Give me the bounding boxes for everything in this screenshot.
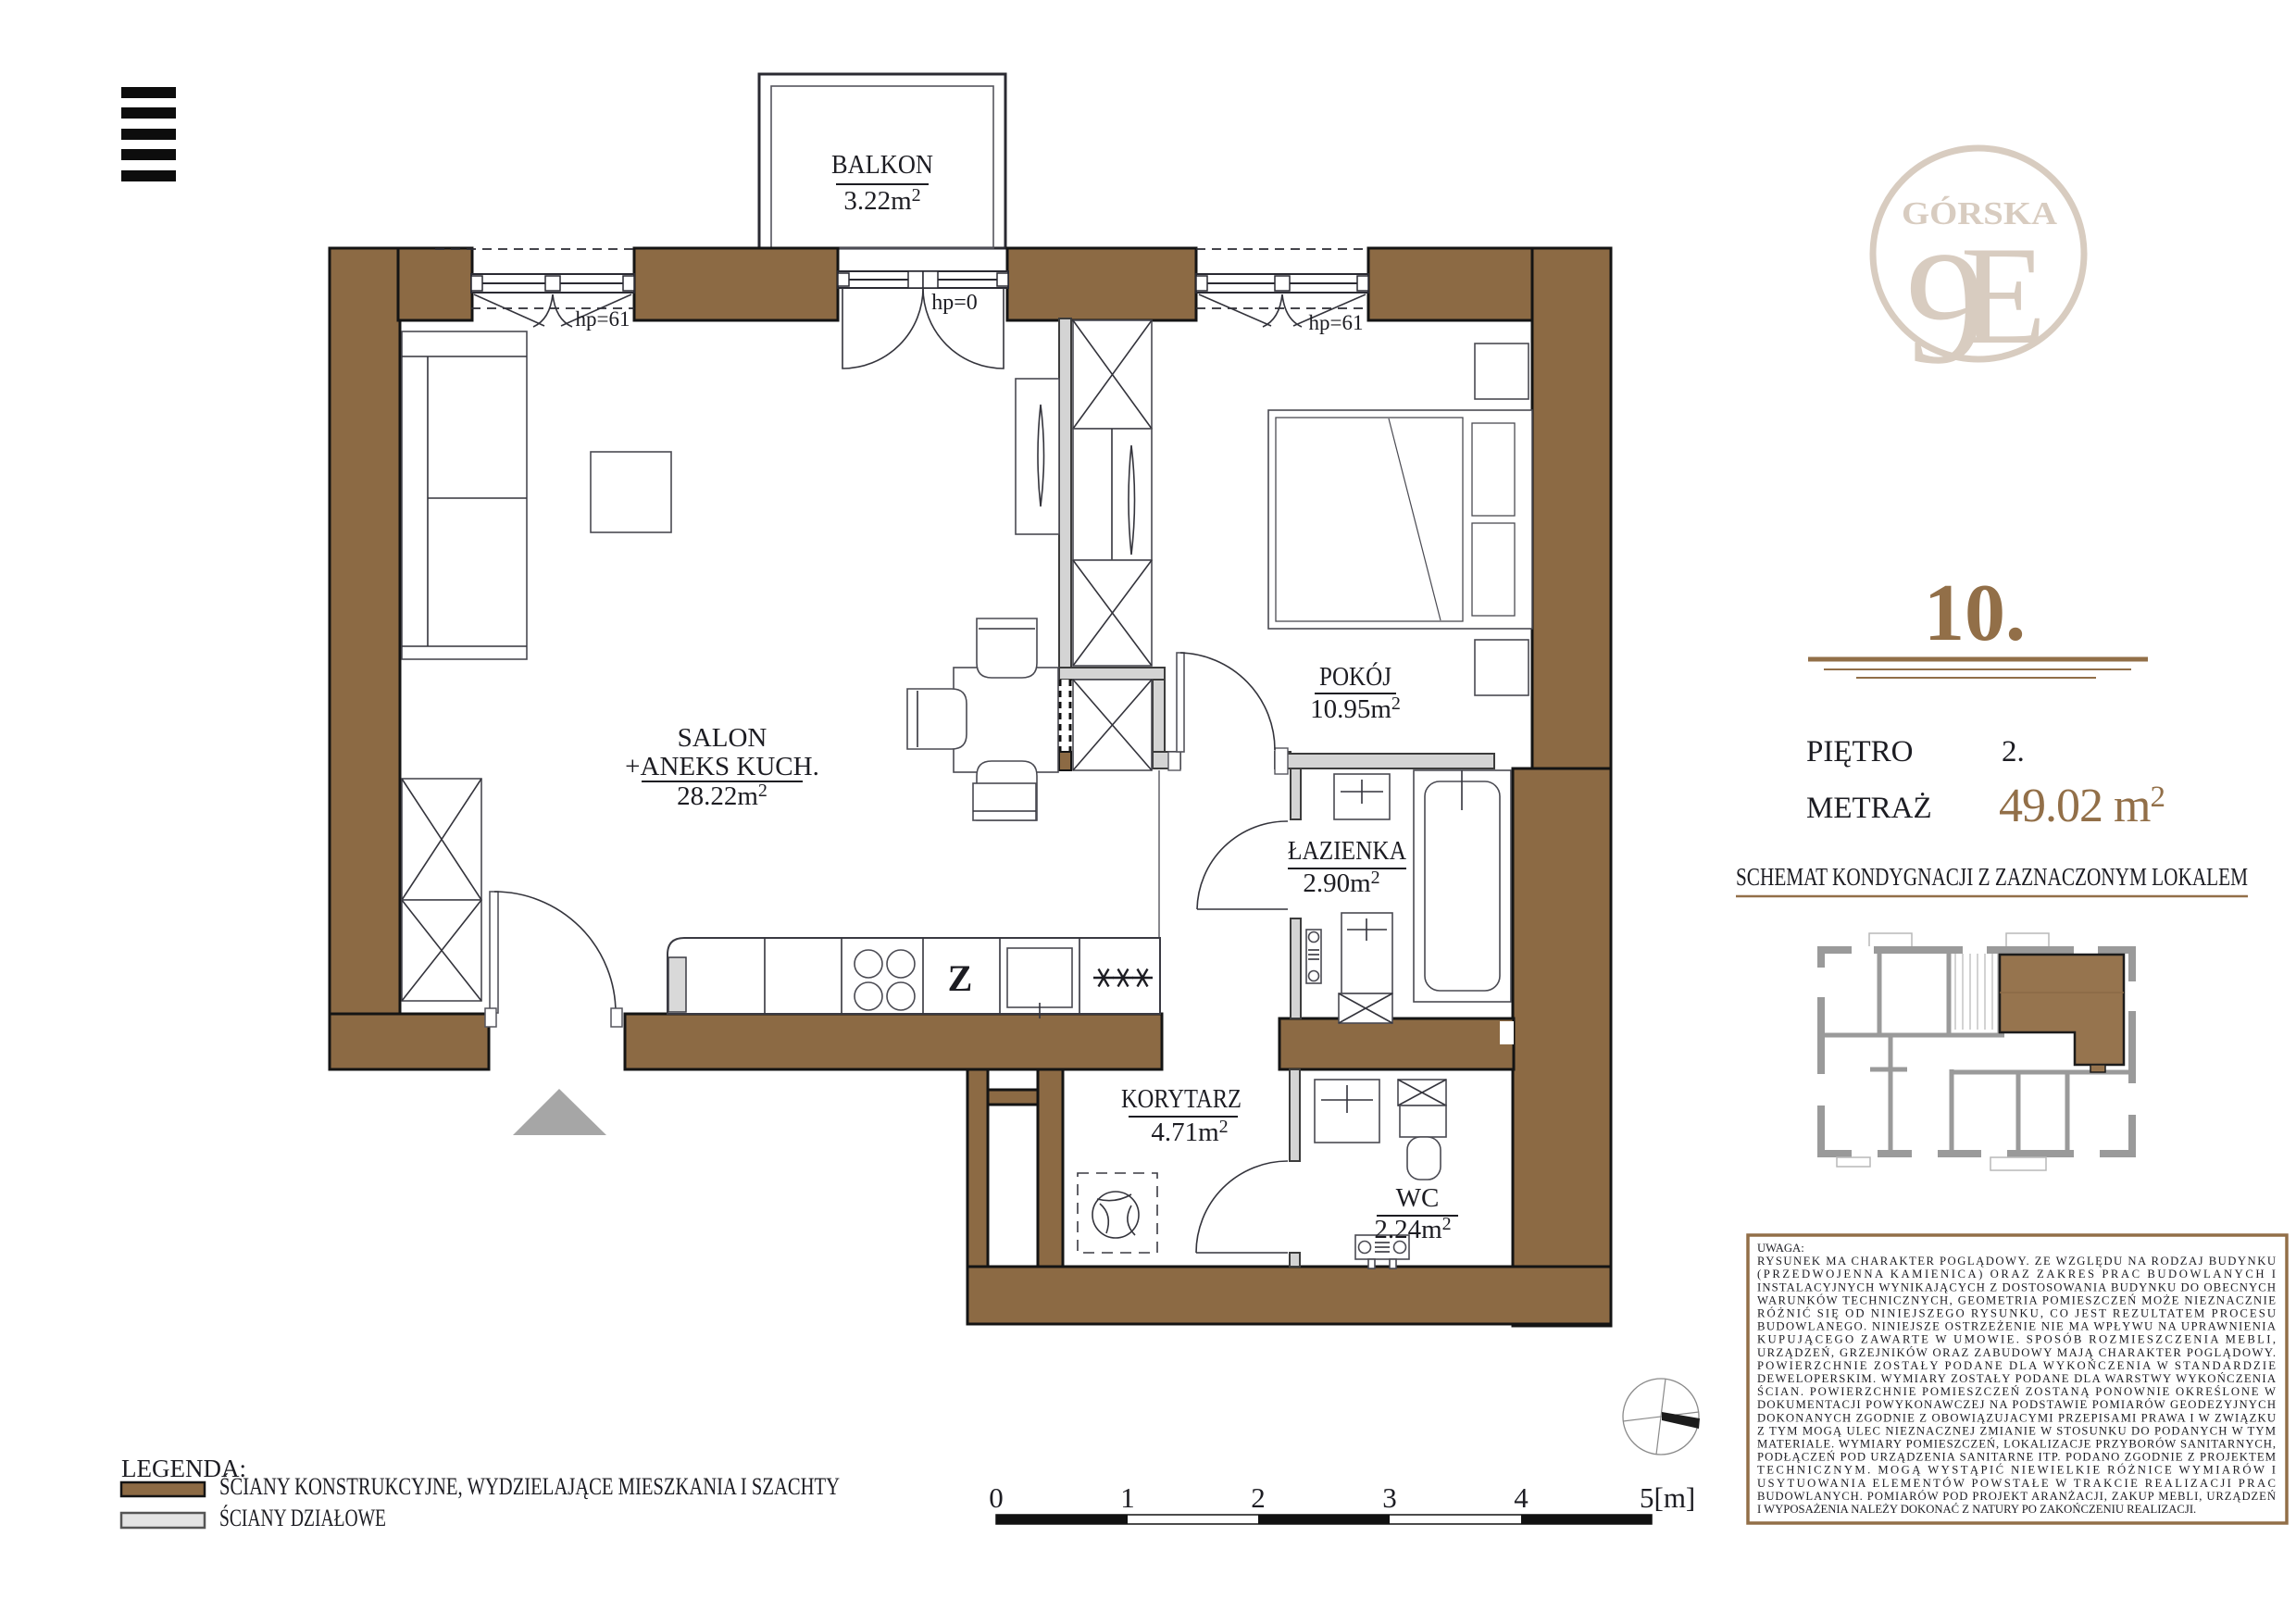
svg-text:10.: 10. xyxy=(1924,568,2026,658)
svg-text:2.90m2: 2.90m2 xyxy=(1303,868,1379,898)
svg-text:TECHNICZNYM. MOGĄ WYSTĄPIĆ NIE: TECHNICZNYM. MOGĄ WYSTĄPIĆ NIEWIELKIE RÓ… xyxy=(1757,1464,2276,1477)
svg-text:Z: Z xyxy=(948,957,973,999)
svg-text:MATERIALE. WYMIARY POMIESZCZEŃ: MATERIALE. WYMIARY POMIESZCZEŃ, LOKALIZA… xyxy=(1757,1438,2276,1451)
svg-text:hp=61: hp=61 xyxy=(1309,311,1364,334)
svg-text:10.95m2: 10.95m2 xyxy=(1310,693,1401,724)
svg-text:1: 1 xyxy=(1120,1481,1135,1514)
svg-text:Z TYM MOGĄ ULEC NIEZNACZNEJ ZM: Z TYM MOGĄ ULEC NIEZNACZNEJ ZMIANIE W ST… xyxy=(1757,1424,2276,1437)
svg-text:0: 0 xyxy=(989,1481,1004,1514)
svg-text:3.22m2: 3.22m2 xyxy=(843,185,920,216)
svg-text:hp=0: hp=0 xyxy=(931,291,978,315)
svg-text:POWIERZCHNIE ZOSTAŁY PODANE DL: POWIERZCHNIE ZOSTAŁY PODANE DLA WYKOŃCZE… xyxy=(1757,1359,2276,1372)
svg-text:WARUNKÓW TECHNICZNYCH, GEOMETR: WARUNKÓW TECHNICZNYCH, GEOMETRIA POMIESZ… xyxy=(1757,1293,2276,1306)
svg-text:URZĄDZEŃ, GRZEJNIKÓW ORAZ ZABU: URZĄDZEŃ, GRZEJNIKÓW ORAZ ZABUDOWY MAJĄ … xyxy=(1757,1346,2276,1359)
svg-text:2.24m2: 2.24m2 xyxy=(1374,1214,1451,1244)
svg-text:DEWELOPERSKIM. WYMIARY ZOSTAŁY: DEWELOPERSKIM. WYMIARY ZOSTAŁY PODANE DL… xyxy=(1757,1372,2277,1385)
svg-text:SALON: SALON xyxy=(678,723,767,753)
svg-text:hp=61: hp=61 xyxy=(576,307,630,331)
svg-text:+ANEKS KUCH.: +ANEKS KUCH. xyxy=(625,752,819,781)
svg-text:ŚCIANY DZIAŁOWE: ŚCIANY DZIAŁOWE xyxy=(219,1505,386,1531)
svg-text:4: 4 xyxy=(1514,1481,1529,1514)
svg-text:UWAGA:: UWAGA: xyxy=(1757,1242,1804,1255)
svg-text:KORYTARZ: KORYTARZ xyxy=(1121,1084,1242,1114)
svg-text:3: 3 xyxy=(1382,1481,1397,1514)
svg-text:DOKUMENTACJI POWYKONAWCZEJ NA: DOKUMENTACJI POWYKONAWCZEJ NA PODSTAWIE … xyxy=(1757,1398,2276,1411)
svg-text:28.22m2: 28.22m2 xyxy=(677,781,767,811)
svg-text:I WYPOSAŻENIA NALEŻY DOKONAĆ Z: I WYPOSAŻENIA NALEŻY DOKONAĆ Z NATURY PO… xyxy=(1757,1503,2196,1516)
svg-text:DOKONANYCH ZGODNIE Z OBOWIĄZUJ: DOKONANYCH ZGODNIE Z OBOWIĄZUJACYMI PRZE… xyxy=(1757,1411,2276,1424)
svg-text:POKÓJ: POKÓJ xyxy=(1319,661,1391,692)
svg-text:ŁAZIENKA: ŁAZIENKA xyxy=(1288,836,1406,866)
svg-text:5[m]: 5[m] xyxy=(1640,1481,1695,1514)
svg-text:PODŁĄCZEŃ POD URZĄDZENIA SANIT: PODŁĄCZEŃ POD URZĄDZENIA SANITARNE ITP. … xyxy=(1757,1451,2276,1464)
svg-text:BUDOWLANEGO. NINIEJSZE OSTRZEŻ: BUDOWLANEGO. NINIEJSZE OSTRZEŻENIE NIE M… xyxy=(1757,1320,2277,1333)
svg-text:KUPUJĄCEGO ZAWARTE W UMOWIE. S: KUPUJĄCEGO ZAWARTE W UMOWIE. SPOSÓB ROZM… xyxy=(1757,1333,2276,1346)
svg-text:METRAŻ: METRAŻ xyxy=(1806,792,1932,825)
svg-text:BUDOWLANYCH. POMIARÓW POD PROJ: BUDOWLANYCH. POMIARÓW POD PROJEKT ARANŻA… xyxy=(1757,1490,2276,1503)
svg-text:RÓŻNIĆ SIĘ OD NINIEJSZEGO RYSU: RÓŻNIĆ SIĘ OD NINIEJSZEGO RYSUNKU, CO JE… xyxy=(1757,1307,2276,1320)
svg-text:2.: 2. xyxy=(2002,735,2025,768)
svg-text:BALKON: BALKON xyxy=(831,150,933,180)
svg-text:ŚCIAN. POWIERZCHNIE POMIESZCZE: ŚCIAN. POWIERZCHNIE POMIESZCZEŃ ZOSTANĄ … xyxy=(1757,1385,2276,1398)
svg-text:4.71m2: 4.71m2 xyxy=(1151,1117,1228,1147)
svg-text:49.02 m2: 49.02 m2 xyxy=(1999,780,2165,832)
svg-text:2: 2 xyxy=(1251,1481,1266,1514)
svg-text:E: E xyxy=(1961,218,2047,373)
svg-text:ŚCIANY KONSTRUKCYJNE, WYDZIELA: ŚCIANY KONSTRUKCYJNE, WYDZIELAJĄCE MIESZ… xyxy=(219,1473,840,1500)
svg-text:INSTALACYJNYCH WYNIKAJĄCYCH Z: INSTALACYJNYCH WYNIKAJĄCYCH Z DOSTOSOWAN… xyxy=(1757,1280,2276,1293)
svg-text:PIĘTRO: PIĘTRO xyxy=(1806,735,1914,768)
svg-text:SCHEMAT KONDYGNACJI Z ZAZNACZO: SCHEMAT KONDYGNACJI Z ZAZNACZONYM LOKALE… xyxy=(1736,862,2248,891)
svg-text:WC: WC xyxy=(1396,1183,1440,1213)
